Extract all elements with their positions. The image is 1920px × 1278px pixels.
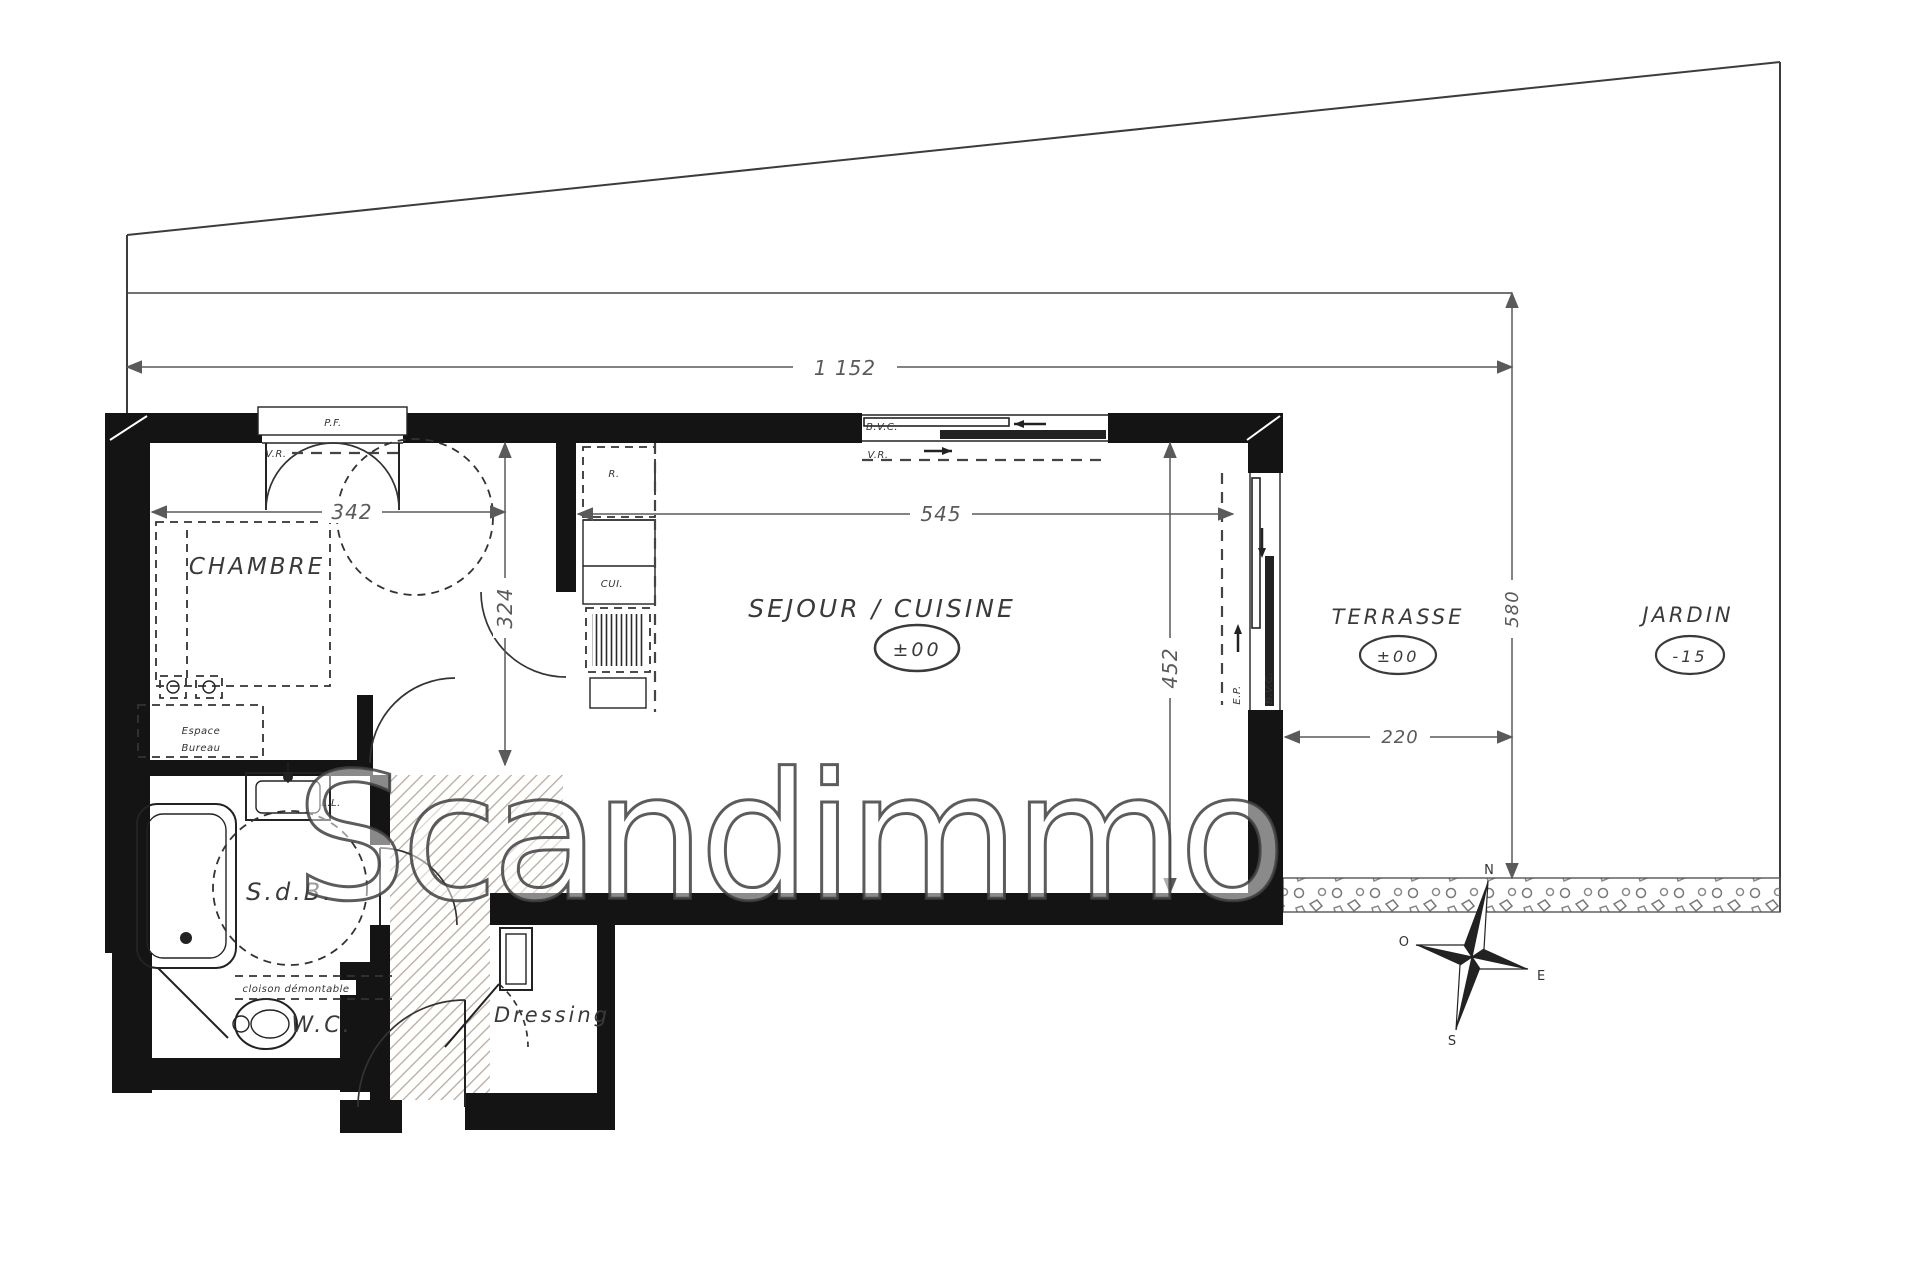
bureau-label-2: Bureau [182, 743, 221, 754]
terrasse-level: ±00 [1377, 647, 1420, 666]
terrasse-label: TERRASSE [1332, 605, 1465, 629]
jardin-level: -15 [1672, 647, 1707, 666]
dim-total-width: 1 152 [814, 356, 876, 380]
wc-label: W.C. [291, 1013, 352, 1038]
cuisine-abbr-label: CUI. [601, 579, 623, 590]
dim-chambre-depth: 324 [493, 587, 517, 628]
dim-garden-depth: 580 [1502, 590, 1523, 627]
compass-e: E [1537, 969, 1545, 984]
watermark: Scandimmo [295, 735, 1280, 940]
sejour-level: ±00 [892, 639, 941, 661]
floor-plan-page: P.F. V.R. B.V.C. V.R. E.P. B.V.C. [0, 0, 1920, 1278]
dim-chambre-width: 342 [331, 500, 372, 524]
pf-label: P.F. [324, 418, 341, 429]
bay-window-top: B.V.C. [862, 413, 1108, 443]
ep-label: E.P. [1232, 685, 1243, 704]
compass-n: N [1484, 863, 1494, 878]
kitchen-strip: R. CUI. [583, 443, 655, 712]
toilet [235, 999, 297, 1049]
floor-plan-drawing: P.F. V.R. B.V.C. V.R. E.P. B.V.C. [0, 0, 1920, 1278]
chambre-label: CHAMBRE [189, 554, 325, 580]
bvc-top-label: B.V.C. [866, 422, 898, 433]
dressing-label: Dressing [494, 1003, 610, 1027]
bay-window-right: E.P. B.V.C. [1222, 473, 1283, 710]
bvc-right-label: B.V.C. [1264, 672, 1275, 704]
cloison-label: cloison démontable [242, 983, 349, 995]
vr-sejour: V.R. [862, 447, 1108, 461]
svg-text:V.R.: V.R. [266, 449, 287, 460]
compass-o: O [1399, 935, 1409, 950]
dim-sejour-width: 545 [920, 502, 961, 526]
gravel-strip [1283, 878, 1780, 912]
rangement-label: R. [608, 469, 619, 480]
dim-sejour-depth: 452 [1158, 647, 1182, 688]
dim-terrasse-width: 220 [1381, 727, 1418, 748]
chambre-furniture [138, 439, 493, 757]
compass-s: S [1448, 1034, 1456, 1049]
sejour-label: SEJOUR / CUISINE [748, 594, 1016, 623]
bed [156, 522, 330, 686]
bureau-label-1: Espace [182, 726, 221, 737]
wc-door-leaf [158, 968, 228, 1038]
vr-chambre: V.R. [266, 449, 401, 460]
jardin-label: JARDIN [1638, 603, 1733, 627]
